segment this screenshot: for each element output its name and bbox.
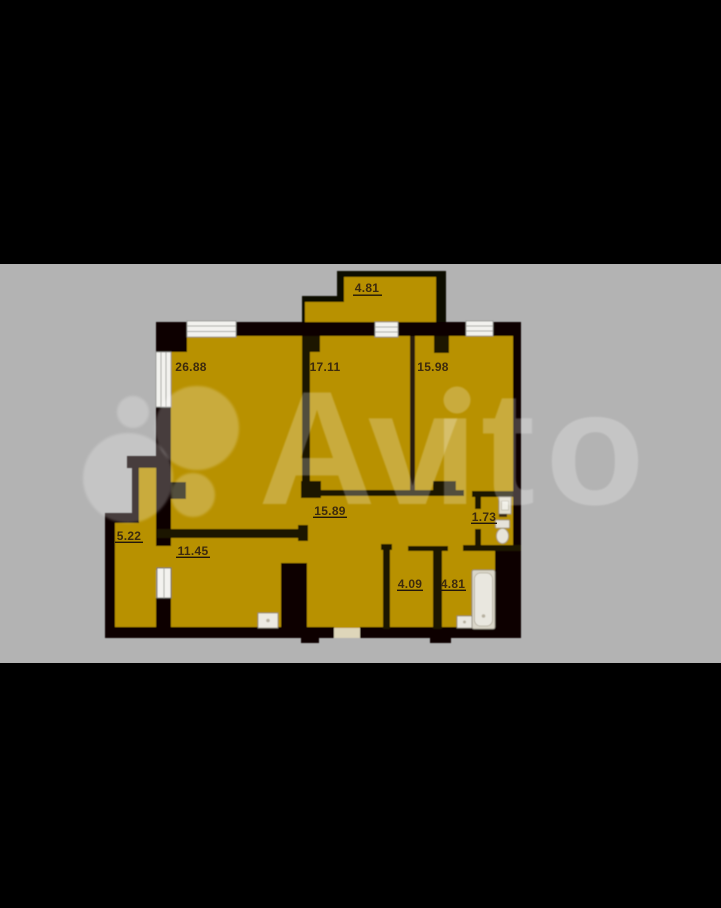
svg-text:4.81: 4.81	[355, 281, 380, 295]
svg-text:t: t	[481, 358, 535, 539]
svg-text:5.22: 5.22	[117, 529, 142, 543]
svg-text:26.88: 26.88	[175, 360, 207, 374]
svg-text:4.81: 4.81	[441, 577, 466, 591]
svg-text:4.09: 4.09	[398, 577, 423, 591]
svg-text:ı: ı	[432, 358, 477, 539]
svg-text:o: o	[546, 358, 645, 539]
svg-text:A: A	[259, 358, 376, 539]
svg-text:11.45: 11.45	[178, 544, 209, 558]
